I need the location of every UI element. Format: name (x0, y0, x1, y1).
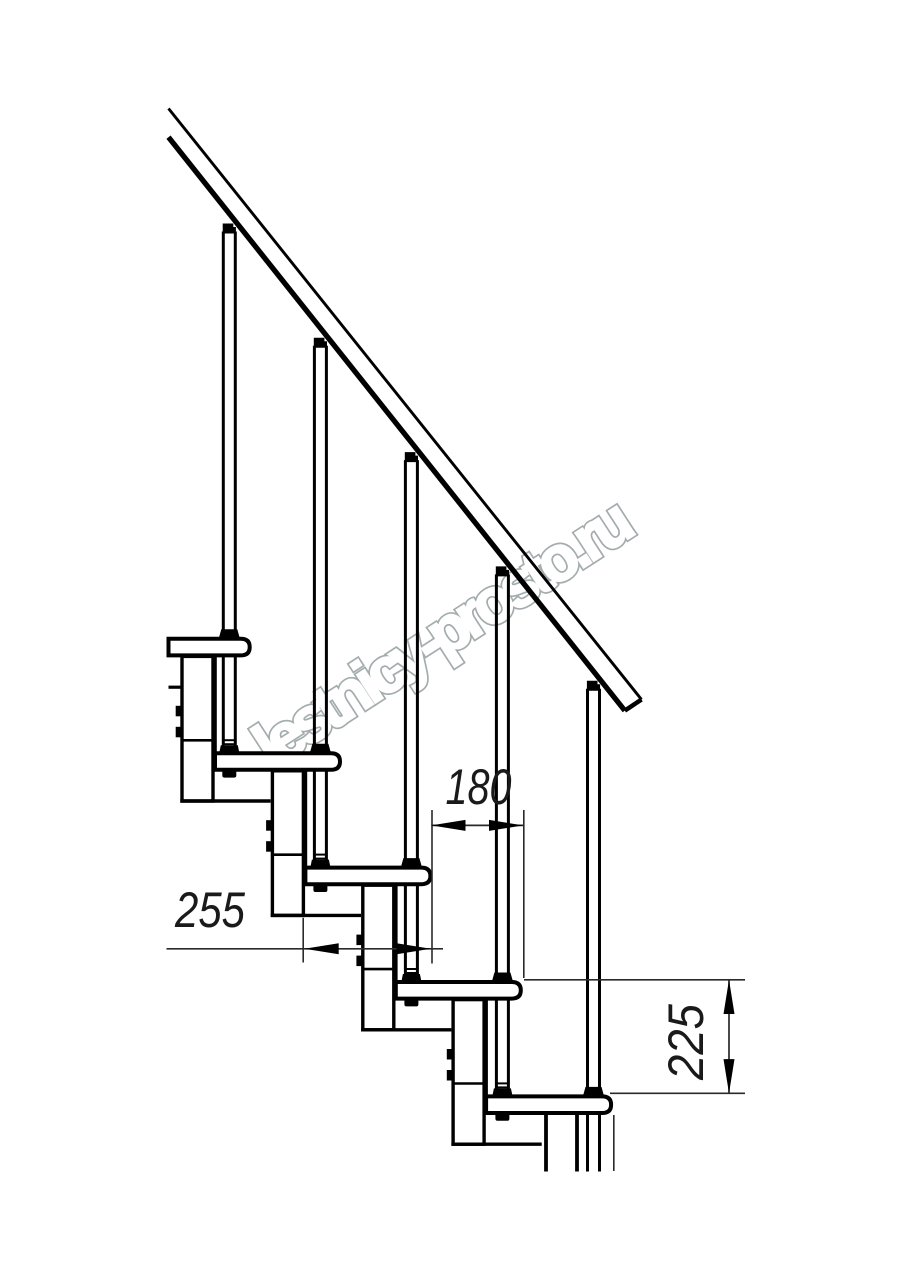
svg-text:180: 180 (446, 759, 512, 815)
svg-text:255: 255 (174, 882, 245, 938)
svg-text:225: 225 (658, 1004, 714, 1081)
